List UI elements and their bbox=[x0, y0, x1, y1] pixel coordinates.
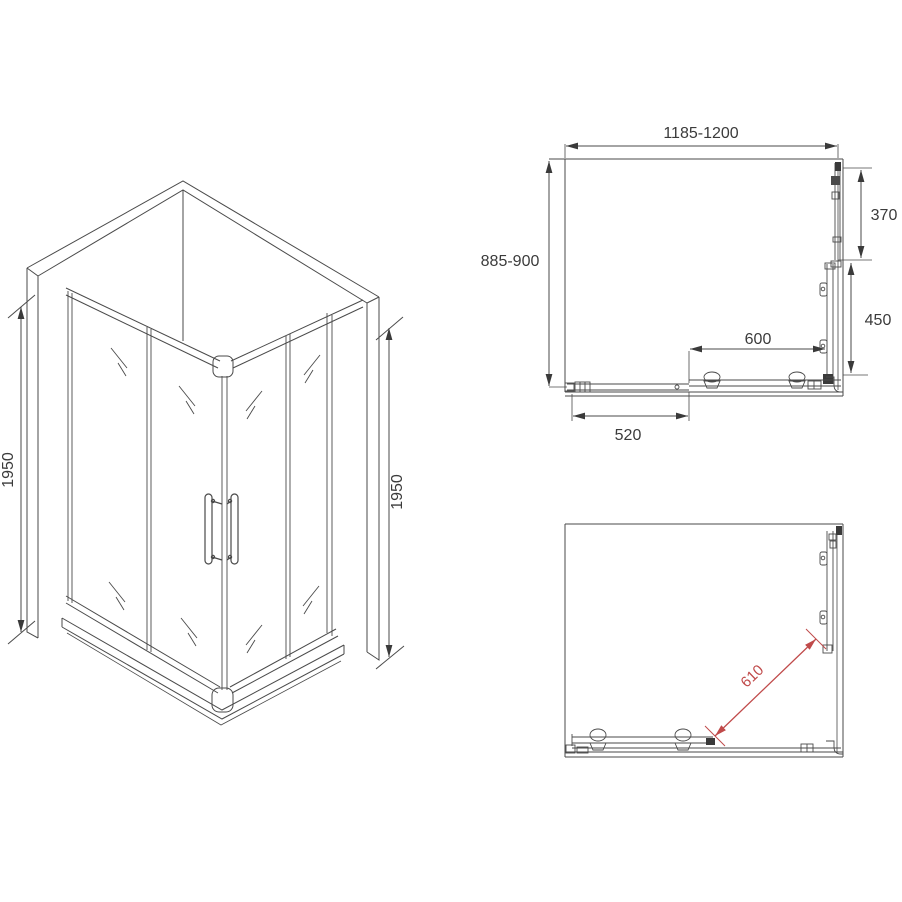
iso-shower-tray bbox=[62, 618, 344, 725]
technical-drawing-sheet: 1950 1950 bbox=[0, 0, 902, 902]
drawing-canvas: 1950 1950 bbox=[0, 0, 902, 902]
dim-label-height-right: 1950 bbox=[389, 474, 406, 510]
dim-label-450: 450 bbox=[865, 312, 892, 329]
dim-label-depth: 885-900 bbox=[481, 253, 540, 270]
dim-label-width: 1185-1200 bbox=[663, 125, 738, 142]
dim-label-520: 520 bbox=[615, 427, 642, 444]
dim-label-610: 610 bbox=[737, 662, 767, 692]
plan-top-bottom-sliding-door bbox=[565, 382, 689, 392]
handle-left bbox=[205, 494, 212, 564]
plan-top-outline bbox=[549, 159, 843, 396]
plan-top-right-fixed-panel bbox=[831, 162, 841, 267]
plan-bottom-outline bbox=[565, 524, 843, 757]
iso-walls bbox=[27, 181, 379, 660]
plan-top-bottom-track bbox=[689, 372, 843, 392]
plan-top-right-sliding-door bbox=[820, 263, 835, 384]
dim-label-370: 370 bbox=[871, 207, 898, 224]
plan-bottom-right-door bbox=[820, 526, 842, 653]
plan-top-dim-width bbox=[565, 144, 838, 158]
iso-door-handles bbox=[205, 494, 238, 564]
plan-bottom-dim-diagonal bbox=[705, 629, 826, 746]
iso-glass-edges bbox=[68, 291, 332, 636]
plan-view-top: 1185-1200 885-900 370 450 600 bbox=[481, 125, 898, 444]
iso-top-rails bbox=[66, 288, 363, 368]
iso-view: 1950 1950 bbox=[0, 181, 406, 725]
plan-view-bottom: 610 bbox=[565, 524, 843, 757]
plan-bottom-bottom-door bbox=[566, 729, 715, 753]
iso-panel-stiles bbox=[147, 327, 290, 690]
dim-label-height-left: 1950 bbox=[0, 452, 17, 488]
dim-label-600: 600 bbox=[745, 331, 772, 348]
iso-corner-caps bbox=[212, 356, 233, 712]
handle-right bbox=[231, 494, 238, 564]
